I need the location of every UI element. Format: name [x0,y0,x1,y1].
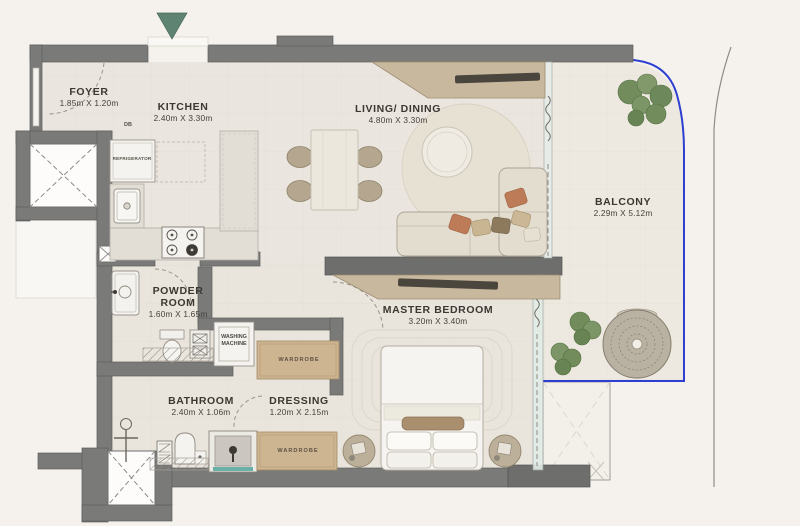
wall-bl-stub [38,453,85,469]
stove-icon [162,227,204,258]
washing-machine-box [214,322,254,366]
powder-vanity-sink-icon [111,271,139,315]
wall-top-left [30,45,148,62]
wardrobe-top-box [257,341,339,379]
wardrobe-bottom-box [257,432,337,470]
dining-chair [356,147,382,168]
round-daybed-icon [603,309,671,378]
wall-living-bedroom [325,257,562,275]
bed-pillow [387,432,431,450]
dining-chair [356,181,382,202]
wall-bath-north [97,362,233,376]
floor-hatch [143,348,213,361]
outside-lobby [16,220,96,298]
pillow [491,217,511,234]
bed-pillow [433,452,477,468]
shaft-upper [30,144,97,207]
wall-powder-right [198,267,212,325]
nightstand-right [489,435,521,467]
floor-plan: FOYER 1.85m X 1.20m KITCHEN 2.40m X 3.30… [0,0,800,526]
bedroom-balcony-slider [533,275,543,470]
wall-top-main [208,45,633,62]
tall-counter [220,131,258,231]
kitchen-sink-icon [114,189,140,223]
shaft-lower [108,451,155,505]
coffee-table-icon [422,127,472,177]
wall-bl-bottom [82,505,172,521]
foyer-window [33,68,39,126]
entry-recess [148,37,208,46]
bolster-pillow [402,417,464,430]
wall-top-block [277,36,333,46]
wall-bottom-stub [508,465,590,487]
dining-table [311,130,358,210]
bed-pillow [387,452,431,468]
pillow [471,219,491,237]
shower-icon [209,431,257,472]
dining-chair [287,147,313,168]
floor-plan-drawing [0,0,800,526]
floor-hatch [150,458,208,470]
dining-chair [287,181,313,202]
nightstand-left [343,435,375,467]
bed-pillow [433,432,477,450]
entry-arrow-icon [157,13,187,39]
pillow [524,227,541,241]
refrigerator-box [110,140,155,182]
site-boundary-line [714,47,731,487]
bed [381,346,483,470]
